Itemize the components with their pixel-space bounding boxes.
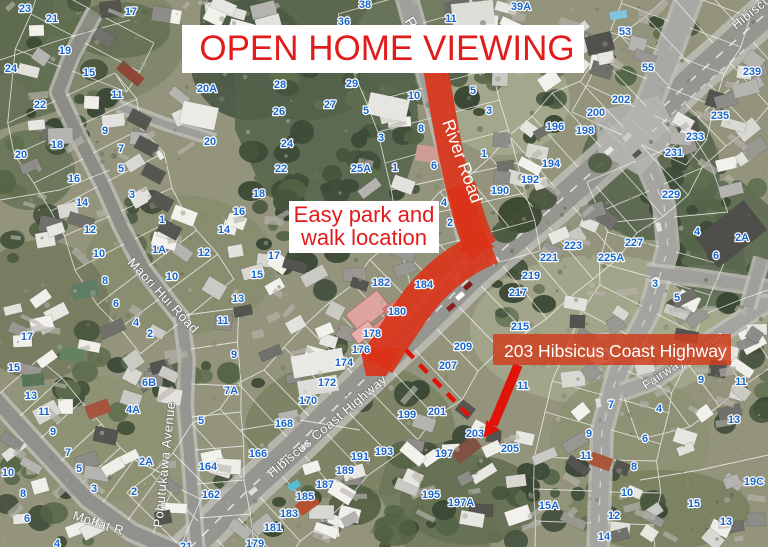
svg-text:5: 5 <box>674 292 680 304</box>
svg-text:28: 28 <box>274 79 286 91</box>
svg-text:10: 10 <box>621 487 633 499</box>
svg-text:9: 9 <box>50 426 56 438</box>
svg-text:180: 180 <box>388 306 406 318</box>
svg-text:7: 7 <box>65 447 71 459</box>
svg-text:209: 209 <box>454 341 472 353</box>
svg-text:191: 191 <box>351 451 369 463</box>
svg-text:13: 13 <box>728 414 740 426</box>
svg-text:3: 3 <box>91 483 97 495</box>
svg-text:197A: 197A <box>448 497 474 509</box>
svg-text:215: 215 <box>511 321 529 333</box>
svg-text:12: 12 <box>198 247 210 259</box>
svg-text:walk location: walk location <box>300 225 427 250</box>
svg-text:22: 22 <box>275 163 287 175</box>
svg-text:199: 199 <box>398 409 416 421</box>
svg-text:15: 15 <box>8 362 20 374</box>
svg-text:9: 9 <box>231 349 237 361</box>
svg-text:14: 14 <box>218 224 231 236</box>
svg-text:185: 185 <box>296 491 314 503</box>
svg-text:203: 203 <box>466 428 484 440</box>
svg-text:6: 6 <box>713 250 719 262</box>
svg-text:26: 26 <box>273 106 285 118</box>
svg-text:8: 8 <box>20 488 26 500</box>
svg-text:10: 10 <box>2 467 14 479</box>
svg-text:11: 11 <box>111 89 123 101</box>
svg-text:15: 15 <box>83 67 95 79</box>
svg-text:1: 1 <box>392 162 398 174</box>
svg-text:18: 18 <box>51 139 63 151</box>
svg-text:9: 9 <box>698 374 704 386</box>
svg-text:16: 16 <box>233 206 245 218</box>
svg-text:3: 3 <box>129 189 135 201</box>
svg-text:13: 13 <box>25 390 37 402</box>
svg-text:223: 223 <box>564 240 582 252</box>
svg-text:3: 3 <box>486 105 492 117</box>
svg-text:8: 8 <box>631 461 637 473</box>
svg-text:4: 4 <box>54 538 61 547</box>
svg-text:200: 200 <box>587 107 605 119</box>
svg-text:219: 219 <box>522 270 540 282</box>
svg-text:164: 164 <box>199 461 218 473</box>
svg-text:11: 11 <box>735 376 747 388</box>
svg-text:11: 11 <box>217 315 229 327</box>
svg-text:7A: 7A <box>224 385 238 397</box>
svg-text:170: 170 <box>299 395 317 407</box>
svg-text:198: 198 <box>576 125 594 137</box>
svg-text:4: 4 <box>133 317 140 329</box>
svg-text:29: 29 <box>346 78 358 90</box>
svg-text:10: 10 <box>93 248 105 260</box>
svg-text:22: 22 <box>34 99 46 111</box>
svg-text:21: 21 <box>46 13 58 25</box>
svg-text:197: 197 <box>435 448 453 460</box>
svg-text:13: 13 <box>720 516 732 528</box>
svg-text:53: 53 <box>619 26 631 38</box>
svg-text:19: 19 <box>59 45 71 57</box>
svg-text:13: 13 <box>232 293 244 305</box>
svg-text:193: 193 <box>375 446 393 458</box>
svg-text:17: 17 <box>268 250 280 262</box>
svg-text:168: 168 <box>275 418 293 430</box>
svg-text:5: 5 <box>470 85 476 97</box>
svg-text:221: 221 <box>540 252 558 264</box>
svg-text:11: 11 <box>38 406 50 418</box>
svg-text:2A: 2A <box>735 232 749 244</box>
svg-text:1: 1 <box>481 148 487 160</box>
svg-text:179: 179 <box>246 538 264 547</box>
svg-text:38: 38 <box>359 0 371 11</box>
svg-text:10: 10 <box>408 90 420 102</box>
svg-text:11: 11 <box>580 450 592 462</box>
svg-text:21: 21 <box>180 541 192 547</box>
svg-text:39A: 39A <box>511 1 531 13</box>
svg-text:17: 17 <box>21 331 33 343</box>
svg-text:231: 231 <box>665 147 683 159</box>
svg-text:195: 195 <box>422 489 440 501</box>
svg-text:23: 23 <box>19 3 31 15</box>
svg-text:239: 239 <box>743 66 761 78</box>
svg-text:6: 6 <box>431 160 437 172</box>
svg-text:15: 15 <box>688 498 700 510</box>
svg-text:233: 233 <box>686 131 704 143</box>
svg-text:12: 12 <box>608 510 620 522</box>
svg-text:235: 235 <box>711 110 729 122</box>
svg-text:2: 2 <box>447 217 453 229</box>
svg-text:7: 7 <box>608 399 614 411</box>
svg-text:192: 192 <box>521 174 539 186</box>
svg-text:18: 18 <box>253 188 265 200</box>
svg-text:25A: 25A <box>351 163 371 175</box>
svg-text:189: 189 <box>336 465 354 477</box>
svg-text:2A: 2A <box>139 456 153 468</box>
svg-text:11: 11 <box>517 380 529 392</box>
svg-text:1A: 1A <box>152 244 166 256</box>
svg-text:178: 178 <box>363 328 381 340</box>
svg-text:187: 187 <box>316 479 334 491</box>
svg-text:14: 14 <box>598 531 611 543</box>
svg-text:181: 181 <box>264 522 282 534</box>
svg-text:183: 183 <box>280 508 298 520</box>
svg-text:20A: 20A <box>197 83 217 95</box>
svg-text:6B: 6B <box>142 377 156 389</box>
svg-text:11: 11 <box>445 13 457 25</box>
svg-text:172: 172 <box>318 377 336 389</box>
svg-text:8: 8 <box>418 123 424 135</box>
svg-text:196: 196 <box>546 121 564 133</box>
svg-text:7: 7 <box>118 143 124 155</box>
svg-text:5: 5 <box>118 163 124 175</box>
svg-text:176: 176 <box>352 344 370 356</box>
svg-text:16: 16 <box>68 173 80 185</box>
svg-text:166: 166 <box>249 448 267 460</box>
svg-text:24: 24 <box>5 63 18 75</box>
svg-text:6: 6 <box>24 513 30 525</box>
svg-text:182: 182 <box>372 277 390 289</box>
svg-text:194: 194 <box>542 158 561 170</box>
svg-text:184: 184 <box>415 279 434 291</box>
svg-text:162: 162 <box>202 489 220 501</box>
svg-text:5: 5 <box>76 463 82 475</box>
svg-text:Easy park and: Easy park and <box>294 202 435 227</box>
svg-text:55: 55 <box>642 62 654 74</box>
svg-text:17: 17 <box>125 6 137 18</box>
svg-text:14: 14 <box>76 197 89 209</box>
svg-text:3: 3 <box>378 132 384 144</box>
svg-text:4: 4 <box>441 197 448 209</box>
svg-text:5: 5 <box>198 415 204 427</box>
svg-text:24: 24 <box>281 138 294 150</box>
svg-text:203 Hibsicus Coast Highway: 203 Hibsicus Coast Highway <box>504 341 727 361</box>
svg-text:27: 27 <box>324 99 336 111</box>
svg-text:20: 20 <box>15 149 27 161</box>
svg-text:4: 4 <box>656 403 663 415</box>
svg-text:OPEN HOME VIEWING: OPEN HOME VIEWING <box>199 29 574 68</box>
svg-text:9: 9 <box>586 428 592 440</box>
svg-text:20: 20 <box>204 136 216 148</box>
svg-text:201: 201 <box>428 406 446 418</box>
svg-text:15A: 15A <box>539 500 559 512</box>
svg-text:4A: 4A <box>126 404 140 416</box>
svg-text:9: 9 <box>102 125 108 137</box>
svg-text:174: 174 <box>335 357 354 369</box>
svg-text:6: 6 <box>113 298 119 310</box>
svg-text:15: 15 <box>251 269 263 281</box>
svg-text:1: 1 <box>159 214 165 226</box>
svg-text:12: 12 <box>84 224 96 236</box>
svg-text:202: 202 <box>612 94 630 106</box>
svg-text:2: 2 <box>147 328 153 340</box>
svg-text:4: 4 <box>694 226 701 238</box>
svg-text:8: 8 <box>102 275 108 287</box>
svg-text:217: 217 <box>509 287 527 299</box>
svg-text:19C: 19C <box>744 476 764 488</box>
svg-text:225A: 225A <box>598 252 624 264</box>
svg-text:6: 6 <box>642 433 648 445</box>
svg-text:227: 227 <box>625 237 643 249</box>
svg-text:229: 229 <box>662 189 680 201</box>
svg-text:190: 190 <box>491 185 509 197</box>
svg-text:3: 3 <box>652 278 658 290</box>
svg-text:2: 2 <box>131 486 137 498</box>
svg-text:10: 10 <box>166 271 178 283</box>
svg-text:5: 5 <box>363 105 369 117</box>
svg-text:205: 205 <box>501 443 519 455</box>
svg-text:207: 207 <box>439 360 457 372</box>
